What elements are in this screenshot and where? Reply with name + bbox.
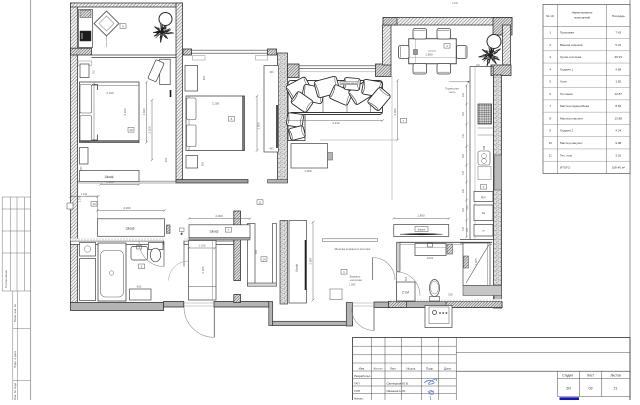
svg-text:1.100: 1.100: [199, 244, 206, 248]
svg-text:Подвесная: Подвесная: [445, 87, 459, 91]
svg-text:1.065: 1.065: [474, 258, 478, 265]
svg-text:Разработал: Разработал: [354, 374, 371, 378]
svg-text:2.065: 2.065: [201, 266, 205, 273]
svg-text:600: 600: [462, 111, 465, 116]
svg-text:1.600: 1.600: [142, 108, 146, 115]
svg-text:Шкаф: Шкаф: [210, 230, 219, 234]
svg-text:1.800: 1.800: [417, 214, 425, 218]
svg-text:600: 600: [462, 207, 465, 212]
svg-text:Ванная комната: Ванная комната: [560, 43, 583, 47]
svg-text:2.200: 2.200: [215, 214, 223, 218]
svg-text:Свинкурав Ю.Б.: Свинкурав Ю.Б.: [387, 382, 410, 386]
svg-text:Шкаф: Шкаф: [126, 227, 135, 231]
svg-text:№ док.: № док.: [406, 366, 416, 370]
svg-text:ПМ: ПМ: [482, 145, 486, 150]
svg-text:14: 14: [262, 257, 266, 261]
svg-text:1.100: 1.100: [78, 195, 82, 202]
svg-text:600: 600: [462, 188, 465, 193]
svg-text:м: м: [483, 229, 485, 233]
svg-text:Шкаф: Шкаф: [105, 175, 114, 179]
svg-text:Мастер-гардеробная: Мастер-гардеробная: [560, 104, 589, 108]
svg-text:8.84: 8.84: [615, 104, 621, 108]
svg-text:2.100: 2.100: [212, 102, 220, 106]
svg-text:2.100: 2.100: [148, 126, 152, 133]
svg-text:13.88: 13.88: [614, 116, 622, 120]
svg-text:10: 10: [129, 128, 133, 132]
svg-text:Лоджия 2: Лоджия 2: [560, 129, 573, 133]
svg-text:Монтаж зеркала в потолке: Монтаж зеркала в потолке: [335, 247, 371, 251]
svg-text:Иванова Н.Ю.: Иванова Н.Ю.: [387, 389, 407, 393]
svg-text:12.87: 12.87: [614, 92, 622, 96]
svg-text:Стадия: Стадия: [562, 374, 573, 378]
svg-text:36.93: 36.93: [614, 55, 622, 59]
svg-text:Холл: Холл: [560, 80, 567, 84]
svg-text:Кухня-гостиная: Кухня-гостиная: [560, 55, 582, 59]
svg-text:часть: часть: [449, 91, 456, 94]
svg-text:Мастер-спальня: Мастер-спальня: [560, 116, 583, 120]
svg-text:1.100: 1.100: [81, 192, 88, 196]
svg-text:2И: 2И: [566, 387, 571, 391]
svg-text:900: 900: [404, 276, 408, 281]
svg-text:21: 21: [614, 387, 618, 391]
svg-text:Тех. пом.: Тех. пом.: [560, 153, 573, 157]
svg-text:1024: 1024: [427, 256, 434, 260]
svg-text:Мастер-санузел: Мастер-санузел: [560, 141, 583, 145]
svg-text:1.500: 1.500: [257, 122, 261, 129]
svg-text:450: 450: [462, 170, 465, 175]
svg-text:2.100: 2.100: [123, 108, 127, 115]
svg-text:№ п/п: № п/п: [546, 14, 555, 18]
svg-text:600: 600: [462, 153, 465, 158]
svg-text:Гостиная: Гостиная: [560, 92, 573, 96]
svg-text:спальное место: спальное место: [341, 83, 357, 85]
svg-text:3.01: 3.01: [615, 153, 621, 157]
svg-text:800: 800: [466, 227, 469, 232]
svg-text:Лист: Лист: [587, 374, 594, 378]
svg-text:600: 600: [201, 161, 205, 166]
svg-text:4.24: 4.24: [615, 129, 621, 133]
svg-text:помещений: помещений: [574, 16, 590, 20]
svg-text:600: 600: [466, 205, 469, 210]
svg-text:3.000: 3.000: [393, 108, 397, 115]
svg-text:600: 600: [137, 285, 142, 289]
svg-text:Площадь: Площадь: [612, 14, 625, 18]
svg-text:Лист: Лист: [390, 366, 397, 370]
svg-text:300: 300: [448, 293, 453, 297]
svg-text:Лоджия 1: Лоджия 1: [560, 67, 573, 71]
svg-text:9.98: 9.98: [615, 141, 621, 145]
svg-text:Камин: Камин: [418, 228, 426, 232]
svg-text:1.065: 1.065: [349, 283, 356, 287]
svg-text:Согласовано: Согласовано: [4, 270, 8, 288]
svg-text:Ст.М: Ст.М: [402, 291, 409, 295]
svg-text:Кол.уч: Кол.уч: [374, 366, 383, 370]
svg-text:Начал.: Начал.: [354, 397, 364, 400]
svg-text:1.82: 1.82: [615, 80, 621, 84]
svg-text:460: 460: [269, 148, 274, 151]
svg-text:Подп.: Подп.: [426, 366, 434, 370]
svg-text:800: 800: [202, 75, 206, 80]
svg-text:10: 10: [549, 141, 553, 145]
svg-text:11: 11: [258, 200, 261, 204]
svg-text:Шкаф: Шкаф: [295, 263, 299, 272]
svg-text:2.200: 2.200: [123, 206, 131, 210]
svg-text:2м: 2м: [482, 211, 486, 215]
svg-text:2.100: 2.100: [106, 91, 114, 95]
svg-text:13: 13: [92, 202, 96, 206]
svg-text:Изм.: Изм.: [359, 366, 366, 370]
svg-text:600: 600: [462, 92, 465, 97]
svg-text:108.46 м²: 108.46 м²: [612, 166, 625, 170]
svg-text:600: 600: [79, 166, 83, 171]
svg-text:7.42: 7.42: [615, 31, 621, 35]
svg-text:845: 845: [254, 249, 258, 254]
svg-text:11: 11: [549, 153, 552, 157]
svg-text:3.887: 3.887: [309, 257, 313, 264]
svg-text:460: 460: [269, 71, 274, 74]
svg-text:1.800: 1.800: [425, 53, 433, 57]
svg-text:Наименование: Наименование: [572, 11, 593, 15]
svg-text:4.89: 4.89: [615, 67, 621, 71]
svg-text:Дух: Дух: [481, 195, 486, 199]
svg-text:Взам. инв. №: Взам. инв. №: [13, 304, 17, 322]
svg-text:Листов: Листов: [610, 374, 621, 378]
svg-text:Инв. № подл.: Инв. № подл.: [13, 382, 17, 400]
svg-text:5.01: 5.01: [615, 43, 621, 47]
svg-text:2.310: 2.310: [332, 121, 340, 125]
svg-text:1.000: 1.000: [304, 169, 312, 173]
svg-text:3.200: 3.200: [452, 2, 459, 5]
svg-text:500: 500: [94, 69, 96, 74]
svg-text:Прихожая: Прихожая: [560, 31, 574, 35]
svg-text:400: 400: [164, 157, 168, 162]
svg-text:4.600: 4.600: [173, 3, 180, 6]
svg-text:ГАП: ГАП: [354, 382, 360, 386]
svg-text:450: 450: [462, 226, 465, 231]
svg-text:ГИП: ГИП: [354, 389, 360, 393]
svg-text:450: 450: [462, 133, 465, 138]
svg-text:Подп. и дата: Подп. и дата: [13, 351, 17, 368]
svg-text:+полочка: +полочка: [350, 278, 363, 282]
svg-text:Дата: Дата: [444, 366, 451, 370]
svg-text:09: 09: [589, 387, 593, 391]
svg-text:ИТОГО:: ИТОГО:: [560, 166, 571, 170]
